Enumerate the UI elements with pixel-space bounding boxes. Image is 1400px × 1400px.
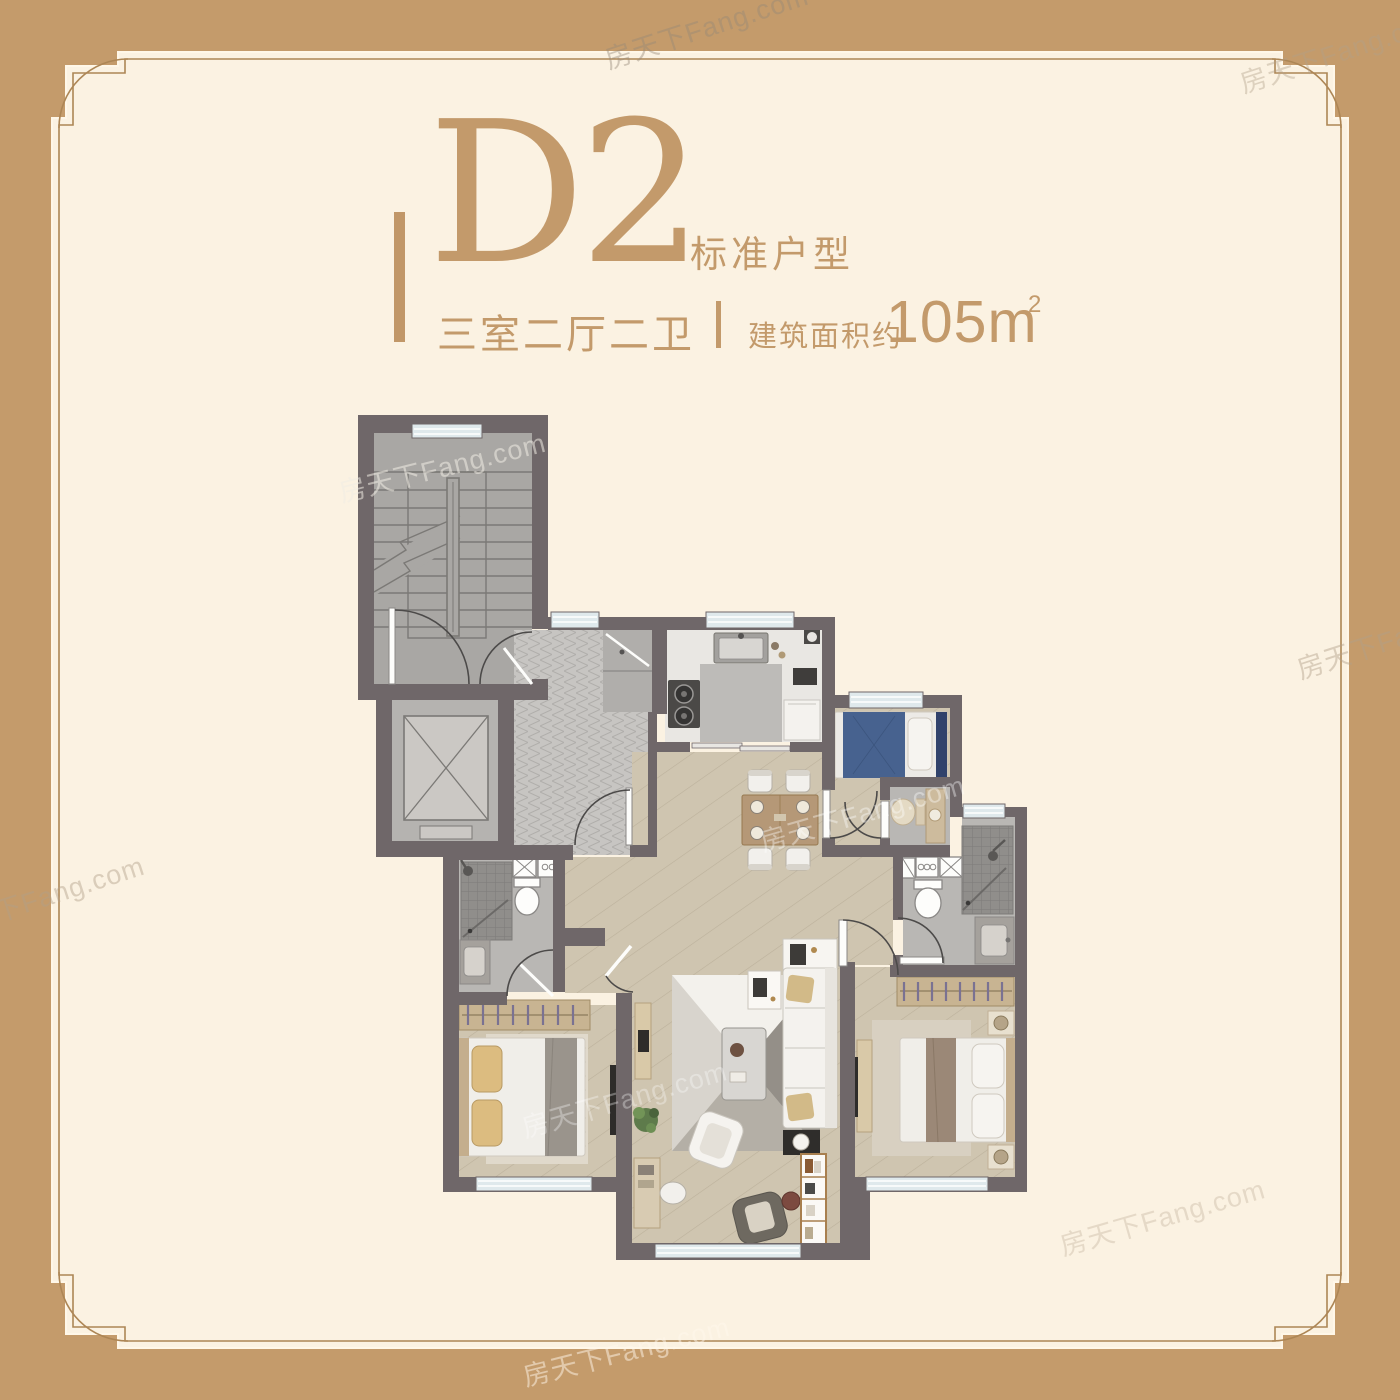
bed2-headboard: [936, 712, 947, 778]
entry-hall-door: [626, 788, 632, 845]
dining-floor: [632, 752, 855, 962]
round-table: [782, 1192, 800, 1210]
powder-toilet-tank: [916, 799, 925, 825]
kitchen-slider: [692, 743, 742, 748]
bed2-pillow: [908, 718, 932, 770]
bath2-door: [900, 957, 944, 964]
shower2-head: [988, 851, 998, 861]
bedroom2-door: [823, 790, 830, 838]
bedroom3-headboard: [459, 1038, 469, 1156]
master-door: [839, 920, 847, 966]
floor-plan: [0, 0, 1400, 1400]
stair-door: [389, 608, 395, 684]
powder-toilet: [891, 799, 915, 825]
powder-door: [881, 801, 889, 838]
master-headboard: [1006, 1038, 1015, 1142]
master-hall-floor: [855, 857, 893, 965]
master-pillow: [972, 1094, 1004, 1138]
bath2-toilet: [915, 888, 941, 918]
sofa-pillow: [785, 974, 814, 1003]
floorplan-card: D2 标准户型 三室二厅二卫 建筑面积约 105m 2: [0, 0, 1400, 1400]
sofa-pillow: [785, 1092, 814, 1121]
shower1-head: [463, 866, 473, 876]
elevator-shaft: [404, 716, 488, 839]
kitchen-center-tile: [700, 664, 782, 742]
corridor-floor: [565, 857, 633, 993]
coffee-table: [722, 1028, 766, 1100]
bath1-toilet: [515, 887, 539, 915]
kitchen-cabinet: [784, 700, 820, 740]
bedroom-2: [835, 712, 947, 778]
master-tv-console: [857, 1040, 872, 1132]
bedroom3-pillow: [472, 1046, 502, 1092]
master-pillow: [972, 1044, 1004, 1088]
bedroom3-pillow: [472, 1100, 502, 1146]
bath2-sink: [916, 857, 938, 877]
coffee-machine: [793, 668, 817, 685]
master-throw: [926, 1038, 956, 1142]
bedroom3-throw: [545, 1038, 577, 1156]
stool: [660, 1182, 686, 1204]
bedroom3-tv: [610, 1065, 617, 1135]
